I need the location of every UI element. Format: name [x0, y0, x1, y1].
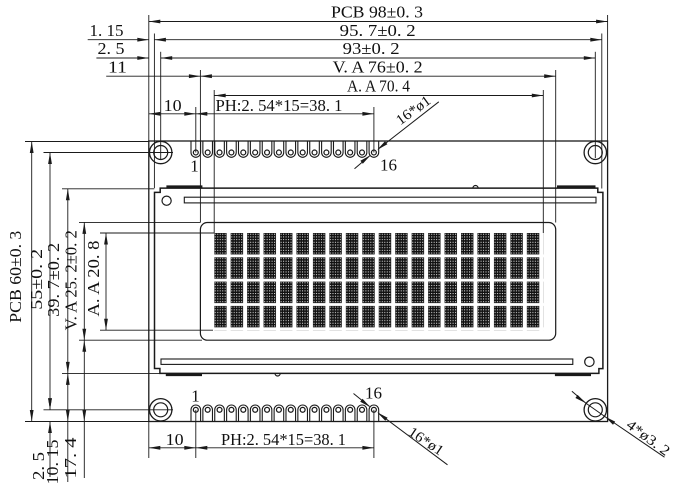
svg-text:10: 10 — [166, 430, 184, 449]
svg-text:PH:2. 54*15=38. 1: PH:2. 54*15=38. 1 — [216, 96, 343, 115]
svg-text:1: 1 — [191, 387, 200, 406]
svg-text:16: 16 — [365, 384, 382, 403]
svg-text:17. 4: 17. 4 — [61, 437, 80, 479]
svg-text:PCB 60±0. 3: PCB 60±0. 3 — [6, 231, 25, 323]
svg-text:10: 10 — [164, 96, 182, 115]
svg-text:V. A 76±0. 2: V. A 76±0. 2 — [333, 57, 423, 76]
svg-text:PCB 98±0. 3: PCB 98±0. 3 — [331, 3, 423, 22]
svg-text:1: 1 — [190, 157, 199, 176]
svg-text:55±0. 2: 55±0. 2 — [27, 249, 46, 310]
svg-text:10. 15: 10. 15 — [43, 440, 62, 485]
svg-text:V. A 25. 2±0. 2: V. A 25. 2±0. 2 — [62, 230, 81, 330]
svg-text:95. 7±0. 2: 95. 7±0. 2 — [340, 21, 416, 40]
svg-text:93±0. 2: 93±0. 2 — [343, 39, 400, 58]
svg-text:2. 5: 2. 5 — [98, 39, 125, 58]
svg-text:1. 15: 1. 15 — [90, 21, 124, 40]
svg-text:11: 11 — [108, 57, 127, 76]
svg-text:39. 7±0. 2: 39. 7±0. 2 — [44, 243, 63, 317]
svg-text:A. A 70. 4: A. A 70. 4 — [347, 77, 410, 96]
svg-text:16: 16 — [380, 156, 397, 175]
svg-text:A. A 20. 8: A. A 20. 8 — [84, 241, 103, 317]
svg-text:PH:2. 54*15=38. 1: PH:2. 54*15=38. 1 — [221, 430, 346, 449]
